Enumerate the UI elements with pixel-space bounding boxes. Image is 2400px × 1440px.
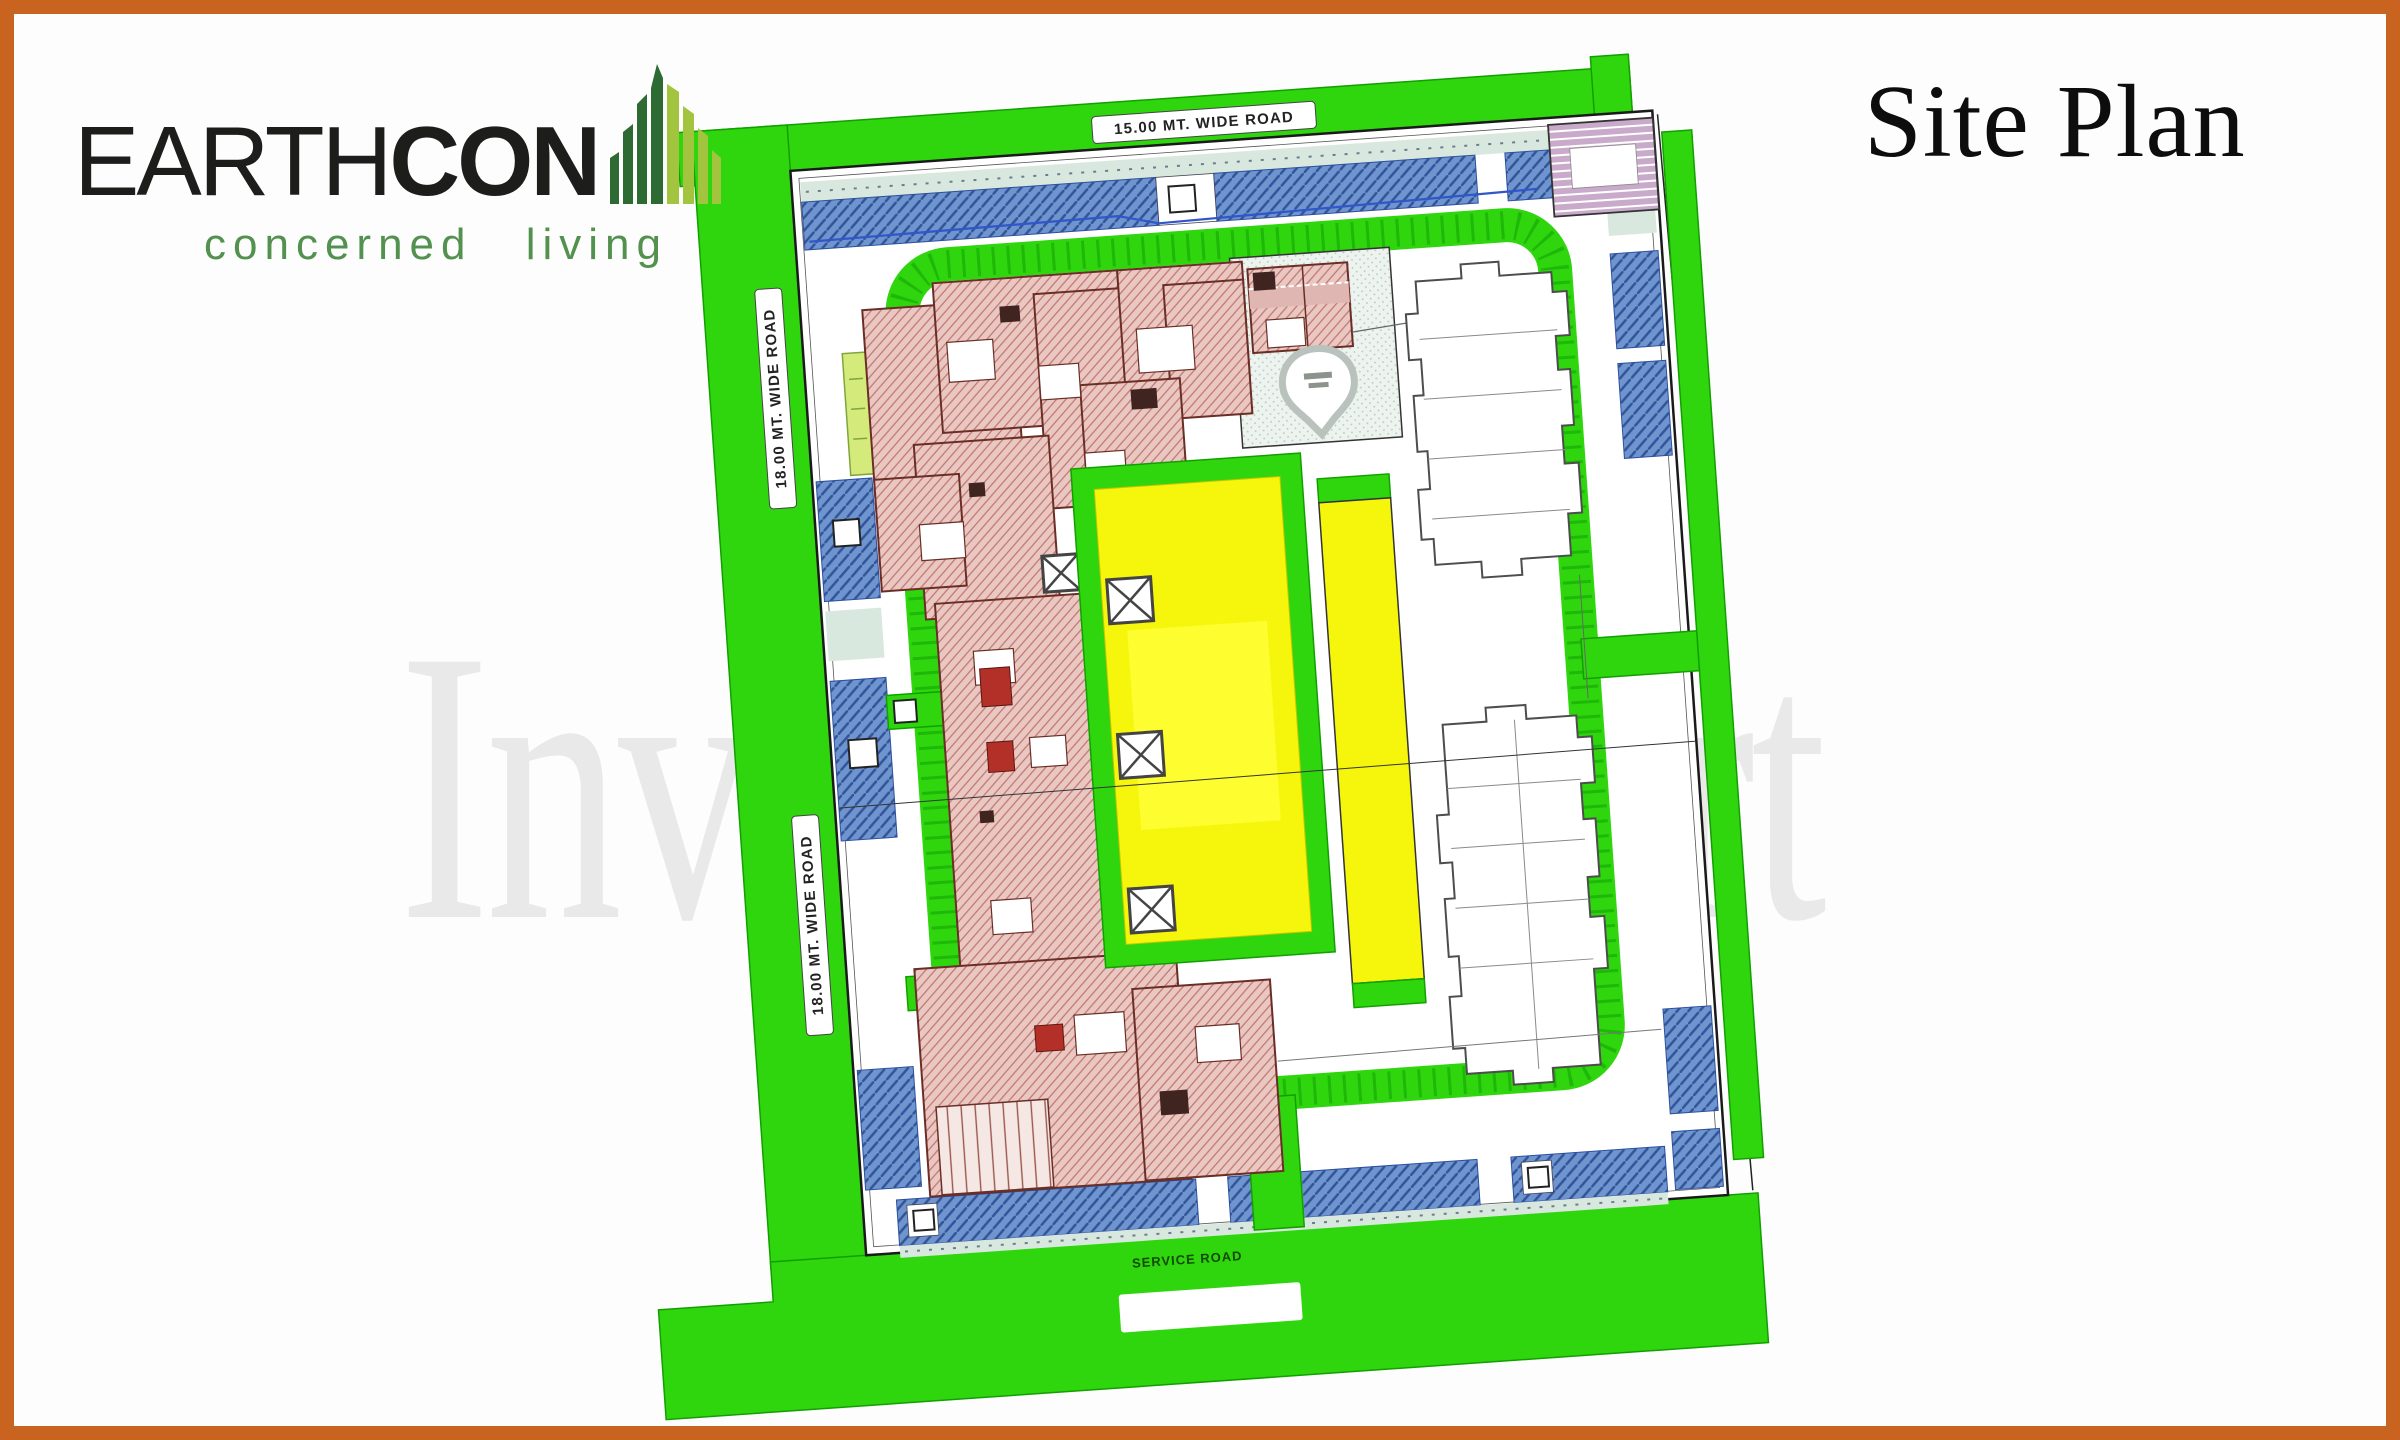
- play-box-3: [1128, 886, 1175, 933]
- play-box-2: [1117, 731, 1164, 778]
- logo-word-con: CON: [389, 106, 598, 216]
- road-connector-east: [1581, 631, 1700, 679]
- page-frame: Invester Mart EARTHCON concerned living …: [0, 0, 2400, 1440]
- main-building-south-block: [914, 945, 1283, 1197]
- courtyard-main: [1071, 453, 1335, 968]
- garage-bays: [936, 1099, 1054, 1195]
- parking-row-right: [1610, 251, 1665, 349]
- earthcon-logo: EARTHCON concerned living: [74, 62, 726, 270]
- logo-row: EARTHCON: [74, 62, 726, 210]
- building-skyline-icon: [608, 62, 726, 208]
- play-box-1: [1107, 577, 1154, 624]
- stair-box: [1042, 554, 1080, 592]
- page-title: Site Plan: [1864, 62, 2246, 181]
- logo-word-earth: EARTH: [74, 106, 389, 216]
- annex-building: [1247, 262, 1353, 353]
- logo-tagline: concerned living: [204, 220, 726, 270]
- purple-block: [1548, 118, 1659, 217]
- tower-outline-north: [1403, 257, 1587, 582]
- site-plan-drawing: 15.00 MT. WIDE ROAD 18.00 MT. WIDE ROAD …: [634, 24, 1814, 1429]
- logo-wordmark: EARTHCON: [74, 112, 598, 210]
- tower-outline-south: [1430, 700, 1616, 1088]
